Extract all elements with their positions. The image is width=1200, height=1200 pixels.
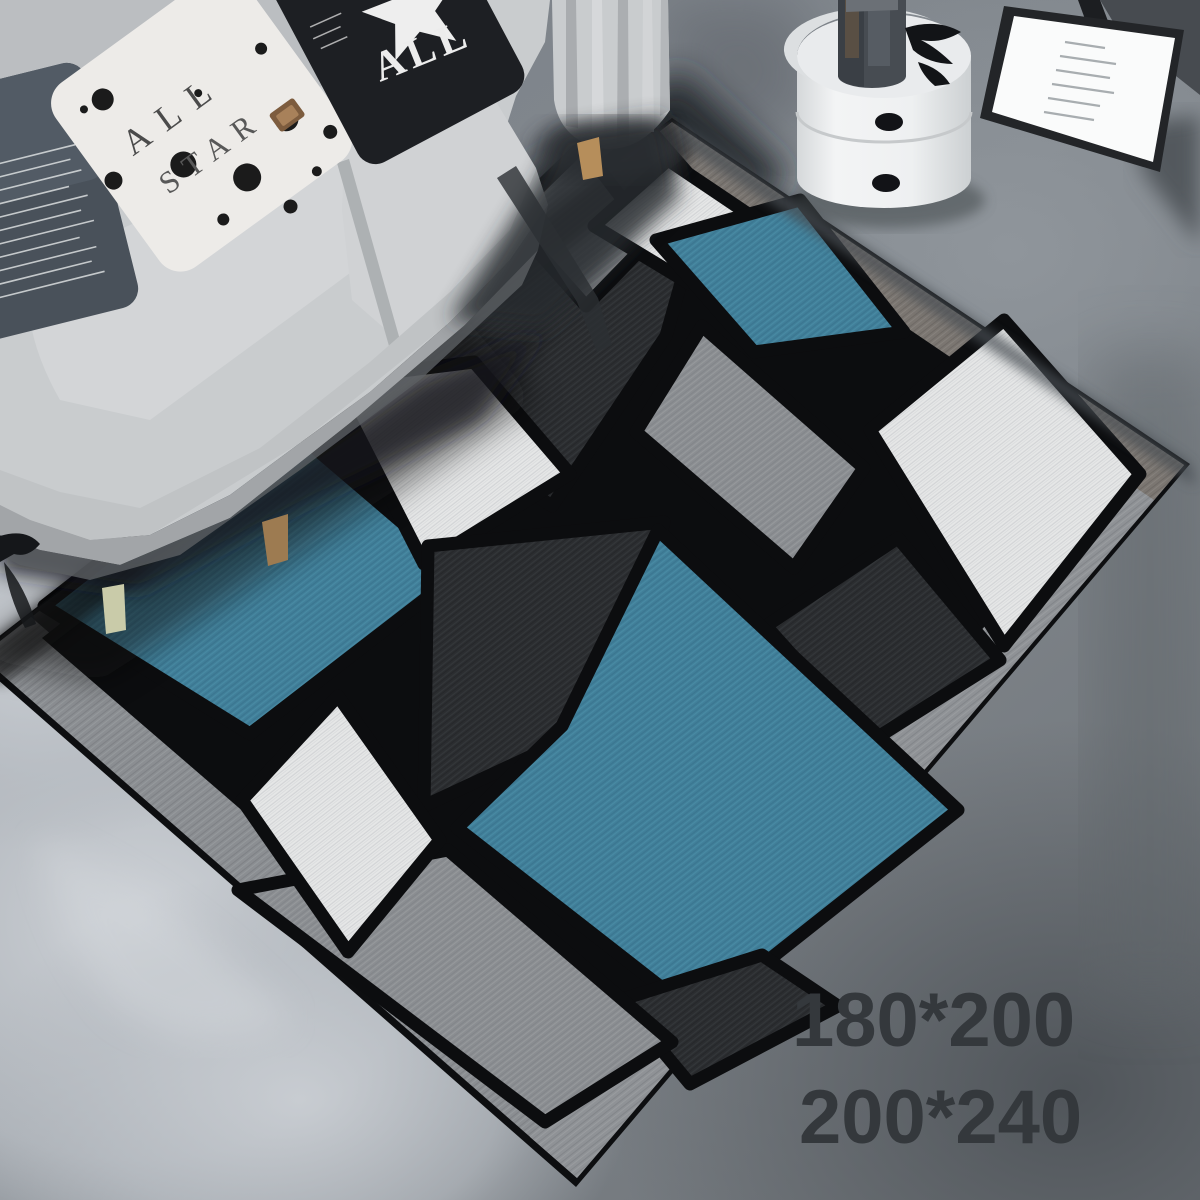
svg-text:180*200: 180*200 (792, 978, 1075, 1063)
svg-text:200*240: 200*240 (799, 1075, 1082, 1160)
